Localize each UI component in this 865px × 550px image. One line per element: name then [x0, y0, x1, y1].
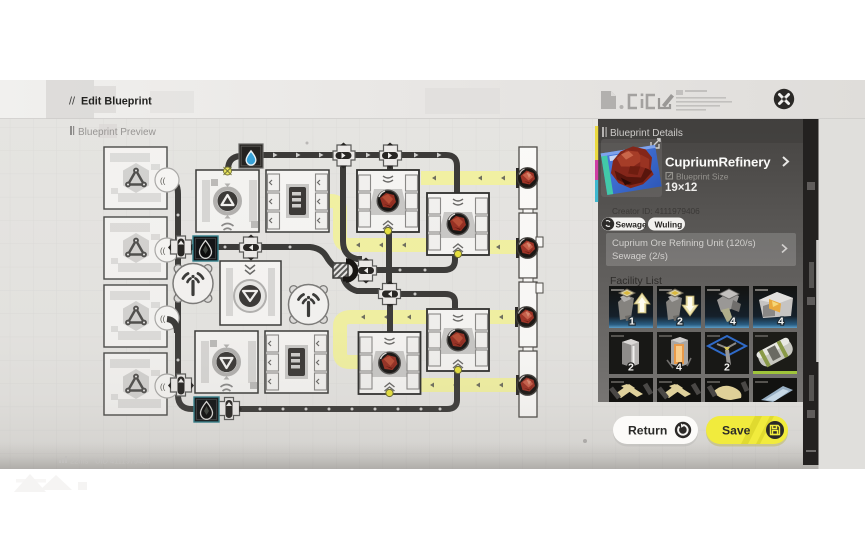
- svg-text:Wuling: Wuling: [655, 219, 683, 229]
- svg-text:1: 1: [629, 316, 635, 328]
- svg-text:Blueprint Preview: Blueprint Preview: [78, 127, 157, 138]
- svg-text:19×12: 19×12: [665, 182, 697, 194]
- svg-text:Return: Return: [628, 424, 667, 438]
- svg-text:2: 2: [628, 362, 634, 374]
- svg-text:2: 2: [677, 316, 683, 328]
- svg-text:2: 2: [724, 362, 730, 374]
- svg-text:Creator ID: 4111979406: Creator ID: 4111979406: [612, 206, 700, 216]
- svg-text:Save: Save: [722, 424, 751, 438]
- svg-text:4: 4: [778, 316, 784, 328]
- svg-text:4: 4: [676, 362, 682, 374]
- svg-text:Sewage: Sewage: [616, 219, 648, 229]
- svg-text:Edit Blueprint: Edit Blueprint: [81, 96, 152, 108]
- svg-text:22ms: 22ms: [70, 457, 89, 466]
- svg-text:4: 4: [730, 316, 736, 328]
- svg-text:Blueprint Size: Blueprint Size: [676, 172, 729, 182]
- svg-text:Facility List: Facility List: [610, 275, 662, 287]
- svg-text:UID 4111979406: UID 4111979406: [95, 457, 151, 466]
- svg-text:CupriumRefinery: CupriumRefinery: [665, 155, 771, 170]
- svg-text://: //: [69, 96, 75, 108]
- svg-text:Sewage (2/s): Sewage (2/s): [612, 251, 668, 262]
- svg-text:Blueprint Details: Blueprint Details: [610, 128, 683, 139]
- svg-text:Cuprium Ore Refining Unit (120: Cuprium Ore Refining Unit (120/s): [612, 238, 756, 249]
